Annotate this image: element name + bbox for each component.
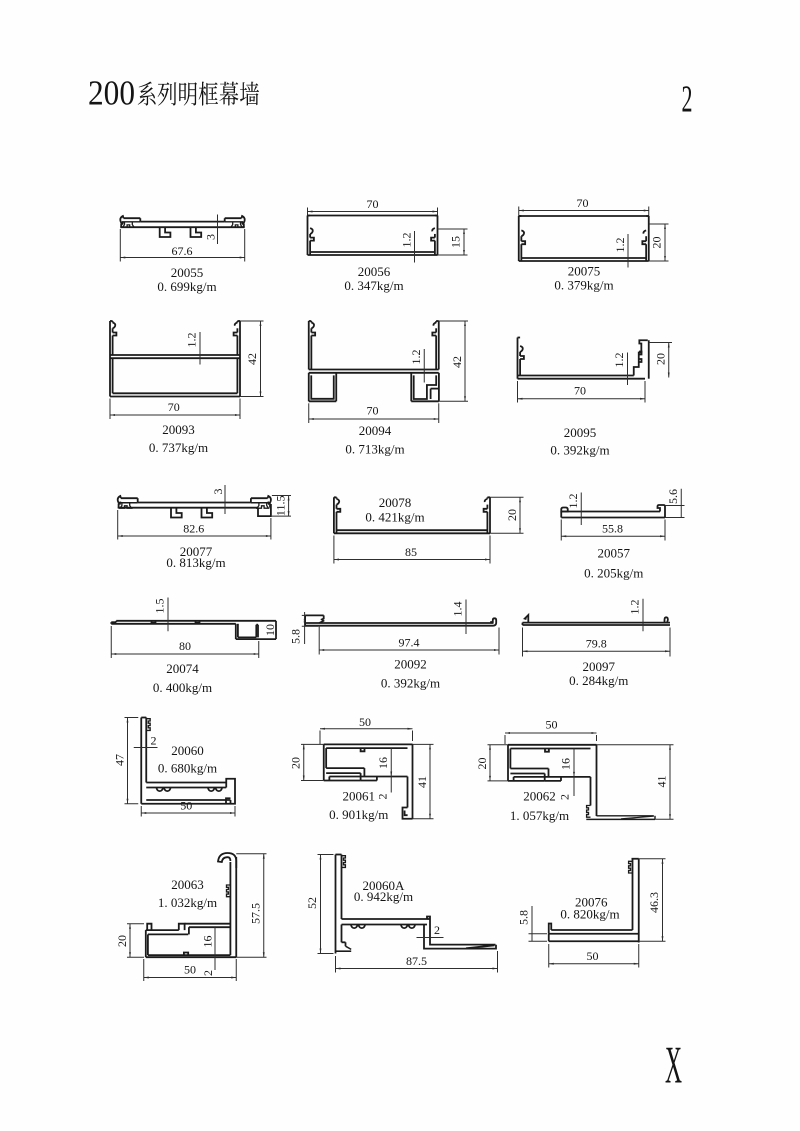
- svg-text:20: 20: [115, 935, 129, 947]
- svg-text:20063: 20063: [171, 877, 204, 892]
- svg-text:1.2: 1.2: [613, 238, 627, 253]
- svg-text:20097: 20097: [583, 659, 616, 674]
- svg-text:10: 10: [263, 624, 277, 636]
- svg-text:0. 392kg/m: 0. 392kg/m: [550, 443, 609, 458]
- svg-text:70: 70: [367, 197, 379, 211]
- svg-text:57.5: 57.5: [248, 903, 262, 924]
- svg-text:0. 713kg/m: 0. 713kg/m: [345, 442, 404, 457]
- svg-text:20: 20: [653, 353, 667, 365]
- svg-text:0. 820kg/m: 0. 820kg/m: [560, 907, 619, 922]
- svg-text:2: 2: [151, 734, 157, 748]
- svg-text:52: 52: [305, 897, 319, 909]
- svg-text:20057: 20057: [598, 546, 631, 561]
- svg-text:0. 699kg/m: 0. 699kg/m: [157, 279, 216, 294]
- svg-text:16: 16: [200, 936, 214, 948]
- svg-text:97.4: 97.4: [399, 636, 420, 650]
- svg-text:0. 813kg/m: 0. 813kg/m: [166, 555, 225, 570]
- svg-text:70: 70: [367, 404, 379, 418]
- svg-text:0. 901kg/m: 0. 901kg/m: [329, 807, 388, 822]
- svg-text:50: 50: [359, 715, 371, 729]
- svg-text:1. 032kg/m: 1. 032kg/m: [158, 895, 217, 910]
- svg-text:0. 737kg/m: 0. 737kg/m: [149, 440, 208, 455]
- svg-text:5.8: 5.8: [289, 629, 303, 644]
- svg-text:55.8: 55.8: [602, 522, 623, 536]
- svg-text:20094: 20094: [359, 423, 392, 438]
- svg-text:5.8: 5.8: [516, 910, 530, 925]
- svg-text:0. 392kg/m: 0. 392kg/m: [381, 676, 440, 691]
- svg-text:1.2: 1.2: [612, 353, 626, 368]
- svg-text:X: X: [665, 1037, 682, 1095]
- svg-text:1.2: 1.2: [184, 333, 198, 348]
- svg-text:20056: 20056: [358, 264, 391, 279]
- svg-text:1.2: 1.2: [627, 600, 641, 615]
- svg-text:2: 2: [558, 794, 572, 800]
- svg-text:70: 70: [168, 400, 180, 414]
- svg-text:70: 70: [574, 384, 586, 398]
- svg-text:82.6: 82.6: [183, 522, 204, 536]
- svg-text:41: 41: [654, 776, 668, 788]
- svg-text:79.8: 79.8: [586, 637, 607, 651]
- svg-text:20075: 20075: [568, 264, 601, 279]
- svg-text:0. 284kg/m: 0. 284kg/m: [569, 673, 628, 688]
- svg-text:20078: 20078: [379, 495, 412, 510]
- svg-text:20092: 20092: [394, 657, 427, 672]
- svg-text:0. 347kg/m: 0. 347kg/m: [344, 278, 403, 293]
- svg-text:5.6: 5.6: [666, 489, 680, 504]
- svg-text:1.2: 1.2: [566, 494, 580, 509]
- svg-text:85: 85: [405, 545, 417, 559]
- svg-text:20093: 20093: [162, 422, 195, 437]
- svg-text:1.4: 1.4: [450, 602, 464, 617]
- svg-text:20055: 20055: [171, 265, 204, 280]
- svg-text:16: 16: [376, 757, 390, 769]
- svg-text:11.5: 11.5: [274, 496, 288, 517]
- svg-text:50: 50: [184, 963, 196, 977]
- svg-text:50: 50: [180, 799, 192, 813]
- svg-text:87.5: 87.5: [406, 954, 427, 968]
- svg-text:1.2: 1.2: [409, 350, 423, 365]
- svg-text:0. 421kg/m: 0. 421kg/m: [365, 510, 424, 525]
- svg-text:2: 2: [434, 923, 440, 937]
- svg-text:1.2: 1.2: [399, 233, 413, 248]
- svg-text:15: 15: [448, 236, 462, 248]
- svg-text:1. 057kg/m: 1. 057kg/m: [510, 808, 569, 823]
- svg-text:20060: 20060: [171, 743, 204, 758]
- svg-text:16: 16: [558, 758, 572, 770]
- svg-text:20062: 20062: [523, 789, 556, 804]
- svg-text:42: 42: [245, 353, 259, 365]
- svg-text:20061: 20061: [343, 789, 376, 804]
- svg-text:20074: 20074: [166, 661, 199, 676]
- svg-text:50: 50: [587, 949, 599, 963]
- svg-text:2: 2: [201, 970, 215, 976]
- svg-text:42: 42: [450, 356, 464, 368]
- svg-text:41: 41: [415, 776, 429, 788]
- svg-text:20: 20: [288, 757, 302, 769]
- svg-text:47: 47: [112, 754, 126, 766]
- svg-text:0. 942kg/m: 0. 942kg/m: [354, 889, 413, 904]
- svg-text:0. 400kg/m: 0. 400kg/m: [153, 680, 212, 695]
- svg-text:46.3: 46.3: [647, 892, 661, 913]
- svg-text:2: 2: [682, 79, 693, 121]
- svg-text:50: 50: [546, 718, 558, 732]
- svg-text:0. 205kg/m: 0. 205kg/m: [584, 566, 643, 581]
- svg-text:20: 20: [649, 237, 663, 249]
- svg-text:0. 379kg/m: 0. 379kg/m: [554, 278, 613, 293]
- svg-text:70: 70: [577, 196, 589, 210]
- svg-text:0. 680kg/m: 0. 680kg/m: [158, 761, 217, 776]
- svg-text:3: 3: [211, 489, 225, 495]
- svg-text:2: 2: [375, 794, 389, 800]
- svg-text:3: 3: [203, 234, 217, 240]
- svg-text:67.6: 67.6: [172, 244, 193, 258]
- svg-text:20: 20: [475, 758, 489, 770]
- svg-text:80: 80: [179, 639, 191, 653]
- svg-text:20095: 20095: [564, 425, 597, 440]
- svg-text:20: 20: [505, 509, 519, 521]
- svg-text:1.5: 1.5: [152, 599, 166, 614]
- svg-text:200: 200: [88, 74, 135, 113]
